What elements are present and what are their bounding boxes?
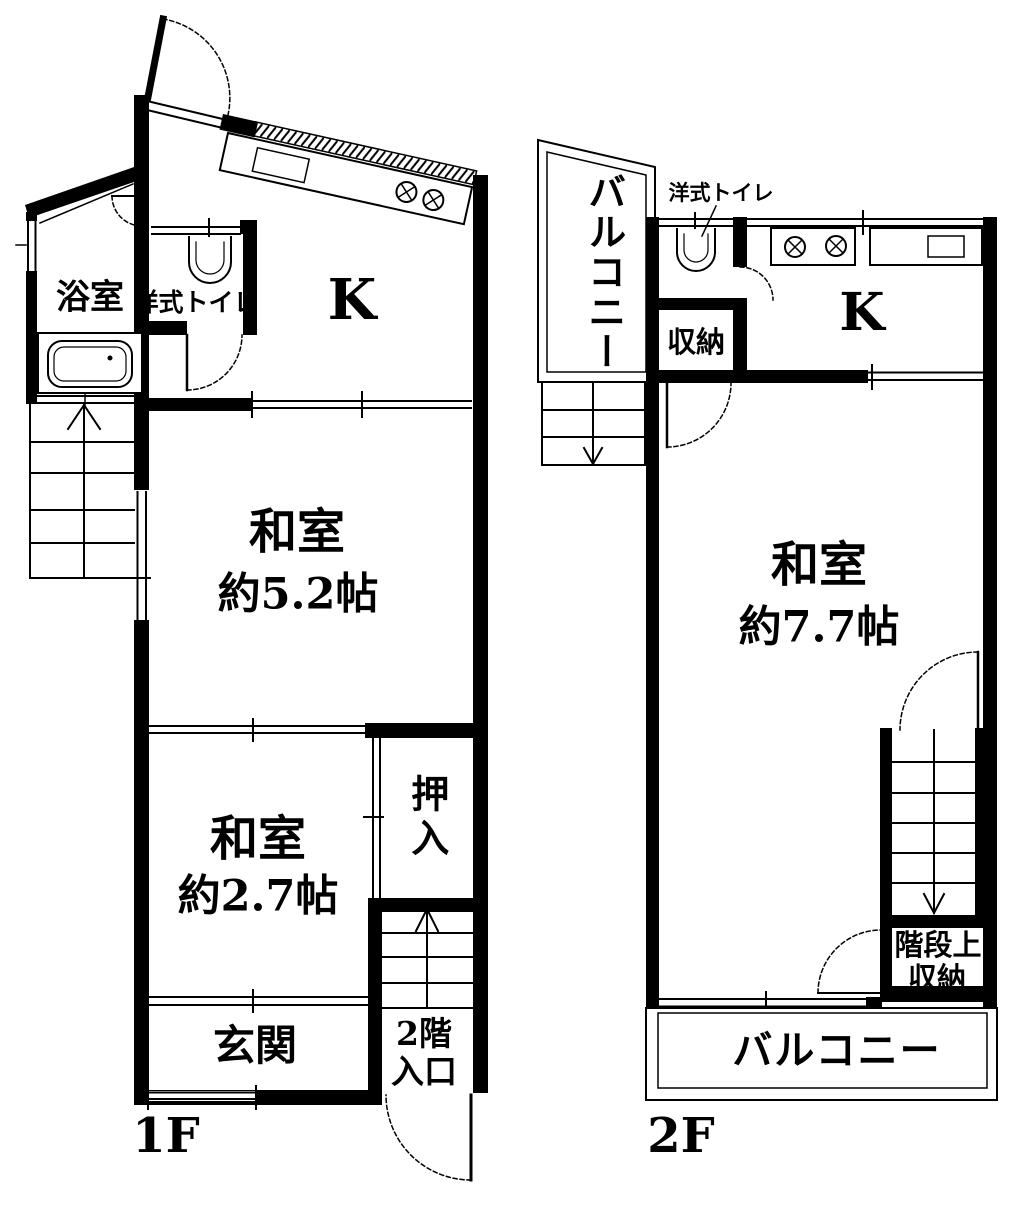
label-upstairs-entrance-line2: 入口	[391, 1055, 457, 1089]
toilet-door-1f	[187, 335, 242, 390]
room-label-washitsu27-size: 約2.7帖	[178, 875, 339, 920]
stairs-2f-upper	[542, 382, 645, 465]
room-label-closet-1f: 押入	[407, 774, 447, 862]
bathtub-icon	[38, 333, 142, 393]
stair-storage-door	[818, 930, 881, 993]
room-label-washitsu52-name: 和室	[249, 508, 345, 558]
room-label-storage-2f: 収納	[667, 327, 725, 357]
bathroom-diagonal-wall	[25, 167, 134, 218]
sink-icon-2f	[928, 236, 964, 257]
room-label-balcony-top-2f: バルコニー	[584, 172, 624, 372]
toilet-door-2f	[740, 267, 773, 300]
toilet-icon-2f	[677, 206, 716, 271]
kitchen-counter-2f	[870, 228, 982, 265]
stairs-1f-lower	[382, 909, 473, 1008]
room-label-kitchen-2f: K	[839, 286, 884, 340]
room-label-toilet-1f: 洋式トイレ	[133, 290, 258, 316]
room-label-toilet-2f: 洋式トイレ	[669, 182, 774, 204]
room-label-kitchen-1f: K	[328, 271, 377, 329]
floor-label-1f: 1F	[132, 1112, 199, 1162]
stairs-2f-lower-door	[900, 652, 978, 730]
label-upstairs-entrance-line1: 2階	[396, 1017, 452, 1051]
stairs-2f-lower	[892, 730, 975, 913]
room-label-bathroom-1f: 浴室	[56, 280, 124, 315]
stairs-1f-upper	[30, 403, 134, 578]
floor-label-2f: 2F	[647, 1112, 714, 1162]
toilet-icon-1f	[189, 237, 231, 283]
room-label-balcony-bottom-2f: バルコニー	[732, 1030, 941, 1072]
storage-door-2f	[667, 383, 731, 447]
label-stair-storage-line1: 階段上	[894, 930, 981, 960]
floor-plan: 浴室 洋式トイレ K 和室 約5.2帖 押入 和室 約2.7帖 玄関 2階 入口…	[0, 0, 1031, 1211]
label-stair-storage-line2: 収納	[908, 963, 966, 993]
upstairs-entrance-door	[386, 1095, 471, 1180]
room-label-washitsu77-size: 約7.7帖	[739, 606, 900, 651]
room-label-washitsu27-name: 和室	[210, 815, 306, 865]
room-label-washitsu52-size: 約5.2帖	[218, 573, 379, 618]
kitchen-stove-2f	[771, 228, 855, 265]
room-label-washitsu77-name: 和室	[771, 541, 867, 591]
room-label-entrance-1f: 玄関	[213, 1024, 297, 1068]
